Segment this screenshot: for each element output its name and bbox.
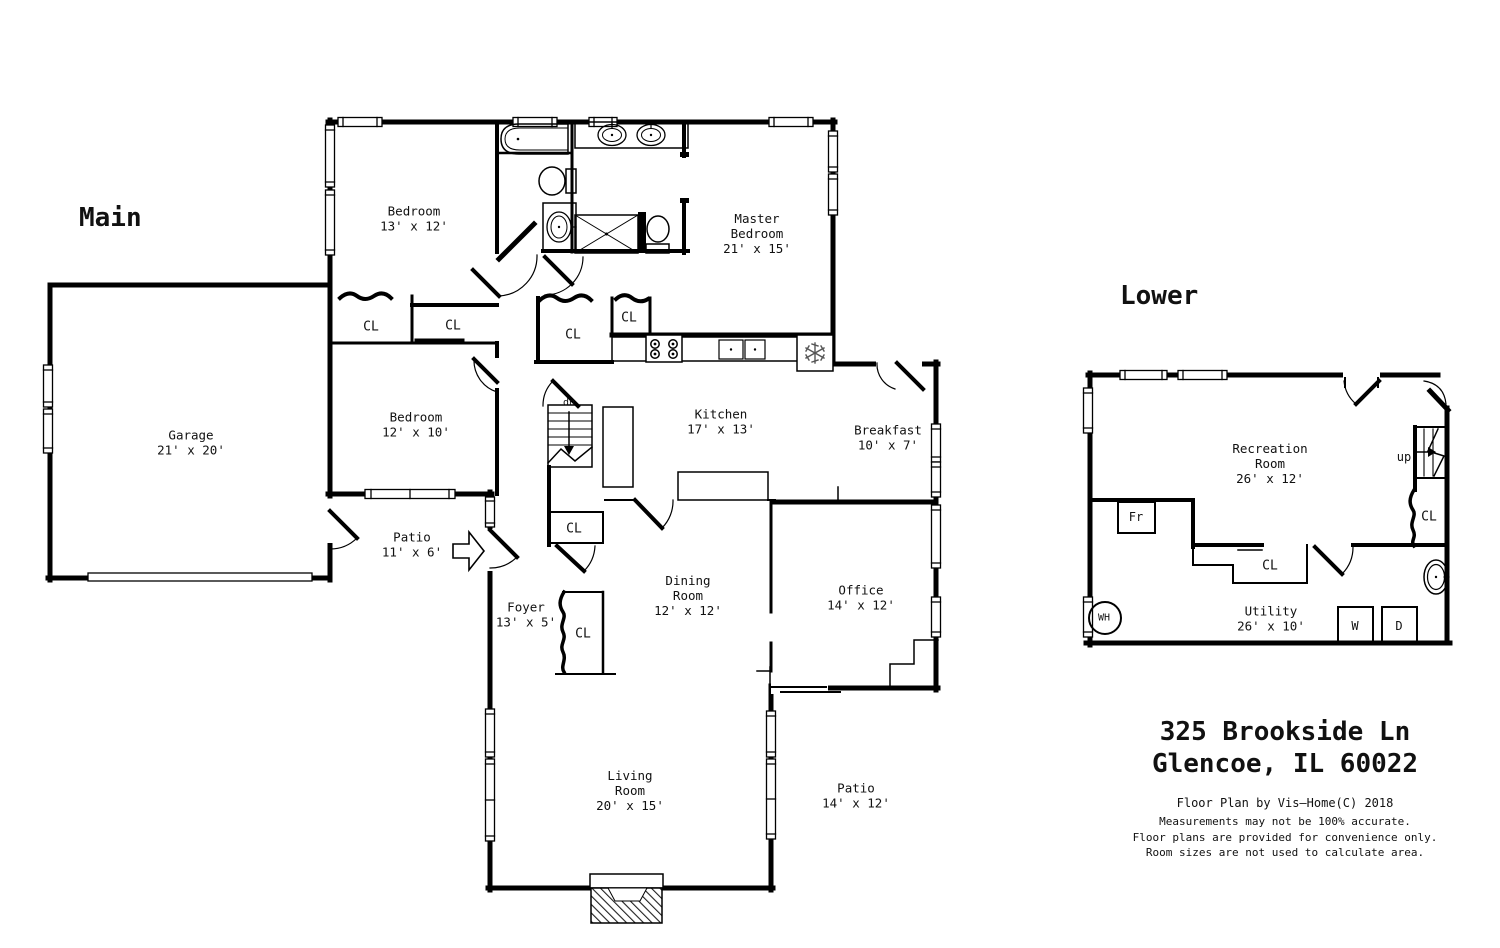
room-label-master-bedroom: Master Bedroom 21' x 15' [721, 212, 793, 256]
room-name: Kitchen [687, 407, 755, 422]
stairs-up [1415, 427, 1447, 478]
hall-bath-fixtures [500, 124, 576, 252]
closet-label: CL [621, 311, 637, 326]
room-dims: 13' x 12' [380, 219, 448, 234]
main-floor-title: Main [79, 203, 142, 233]
rec-room-top-door [1343, 370, 1380, 404]
room-dims: 13' x 5' [496, 615, 556, 630]
washer-label: W [1351, 619, 1358, 633]
closet-label: CL [566, 522, 582, 537]
main-floor-plan [44, 118, 941, 924]
room-name: Foyer [496, 600, 556, 615]
breakfast-exterior-door [876, 360, 923, 389]
room-label-patio-side: Patio 11' x 6' [382, 530, 442, 560]
room-name: Patio [822, 781, 890, 796]
disclaimer-line1: Measurements may not be 100% accurate. [1133, 814, 1438, 830]
room-label-dining-room: Dining Room 12' x 12' [654, 574, 722, 618]
bedroom1-door [473, 255, 537, 296]
room-dims: 10' x 7' [854, 438, 922, 453]
room-dims: 14' x 12' [822, 796, 890, 811]
counter [612, 337, 798, 361]
room-label-living-room: Living Room 20' x 15' [596, 769, 664, 813]
lower-floor-title: Lower [1120, 281, 1198, 311]
utility-door [1315, 547, 1353, 574]
room-label-breakfast: Breakfast 10' x 7' [854, 423, 922, 453]
bedroom2-door [474, 359, 497, 392]
fireplace [590, 874, 663, 923]
closet-label: CL [1262, 559, 1278, 574]
kitchen-dining-door [635, 500, 673, 528]
room-dims: 17' x 13' [687, 422, 755, 437]
refrigerator [797, 335, 833, 371]
footer-block: 325 Brookside Ln Glencoe, IL 60022 Floor… [1133, 716, 1438, 861]
room-label-office: Office 14' x 12' [827, 583, 895, 613]
room-dims: 12' x 12' [654, 603, 722, 618]
disclaimer-line3: Room sizes are not used to calculate are… [1133, 845, 1438, 861]
front-door [486, 529, 517, 571]
foyer-closet-door [557, 546, 595, 571]
room-name: Master Bedroom [721, 212, 793, 242]
room-label-kitchen: Kitchen 17' x 13' [687, 407, 755, 437]
entry-arrow-icon [453, 532, 484, 570]
room-dims: 21' x 15' [721, 241, 793, 256]
room-name: Living Room [601, 769, 659, 799]
corner-door-arc [1424, 381, 1446, 404]
master-bath-fixtures [575, 122, 688, 253]
room-name: Breakfast [854, 423, 922, 438]
stairs-down-label: dn [563, 398, 575, 409]
room-label-bedroom1: Bedroom 13' x 12' [380, 204, 448, 234]
toilet [647, 216, 669, 242]
utility-sink [1424, 560, 1449, 594]
room-label-bedroom2: Bedroom 12' x 10' [382, 410, 450, 440]
address-line1: 325 Brookside Ln [1133, 716, 1438, 748]
room-dims: 11' x 6' [382, 545, 442, 560]
office-steps [890, 640, 938, 688]
master-suite-door [545, 257, 583, 295]
stairs-up-label: up [1397, 450, 1411, 464]
stairs-down [548, 405, 592, 467]
room-label-recreation-room: Recreation Room 26' x 12' [1226, 442, 1314, 486]
water-heater-label: WH [1098, 613, 1110, 624]
stove [646, 335, 682, 362]
closet-label: CL [575, 627, 591, 642]
room-dims: 20' x 15' [596, 798, 664, 813]
room-dims: 12' x 10' [382, 425, 450, 440]
closet-label: CL [565, 328, 581, 343]
master-bath-door-jambs [680, 152, 689, 203]
garage-door [88, 573, 312, 581]
room-name: Garage [157, 428, 225, 443]
room-name: Dining Room [659, 574, 717, 604]
room-label-patio-rear: Patio 14' x 12' [822, 781, 890, 811]
room-label-utility: Utility 26' x 10' [1237, 604, 1305, 634]
room-label-garage: Garage 21' x 20' [157, 428, 225, 458]
down-arrow-icon [564, 412, 574, 455]
kitchen-cabinet [603, 407, 633, 487]
freezer-label: Fr [1129, 510, 1143, 524]
main-windows [44, 118, 941, 842]
kitchen-sink [719, 340, 765, 359]
closet-label: CL [363, 320, 379, 335]
disclaimer-line2: Floor plans are provided for convenience… [1133, 830, 1438, 846]
floor-plan-page: Main Lower Bedroom 13' x 12' Master Bedr… [0, 0, 1500, 948]
toilet [539, 167, 565, 195]
credit-line: Floor Plan by Vis—Home(C) 2018 [1133, 796, 1438, 810]
room-name: Bedroom [382, 410, 450, 425]
room-name: Bedroom [380, 204, 448, 219]
dryer-label: D [1395, 619, 1402, 633]
shower [575, 215, 638, 253]
room-name: Utility [1237, 604, 1305, 619]
kitchen-peninsula [678, 472, 768, 500]
room-name: Office [827, 583, 895, 598]
room-dims: 26' x 10' [1237, 619, 1305, 634]
room-dims: 14' x 12' [827, 598, 895, 613]
room-dims: 21' x 20' [157, 443, 225, 458]
address-line2: Glencoe, IL 60022 [1133, 748, 1438, 780]
closet-label: CL [1421, 510, 1437, 525]
room-label-foyer: Foyer 13' x 5' [496, 600, 556, 630]
room-name: Recreation Room [1226, 442, 1314, 472]
room-dims: 26' x 12' [1226, 471, 1314, 486]
closet-label: CL [445, 319, 461, 334]
room-name: Patio [382, 530, 442, 545]
